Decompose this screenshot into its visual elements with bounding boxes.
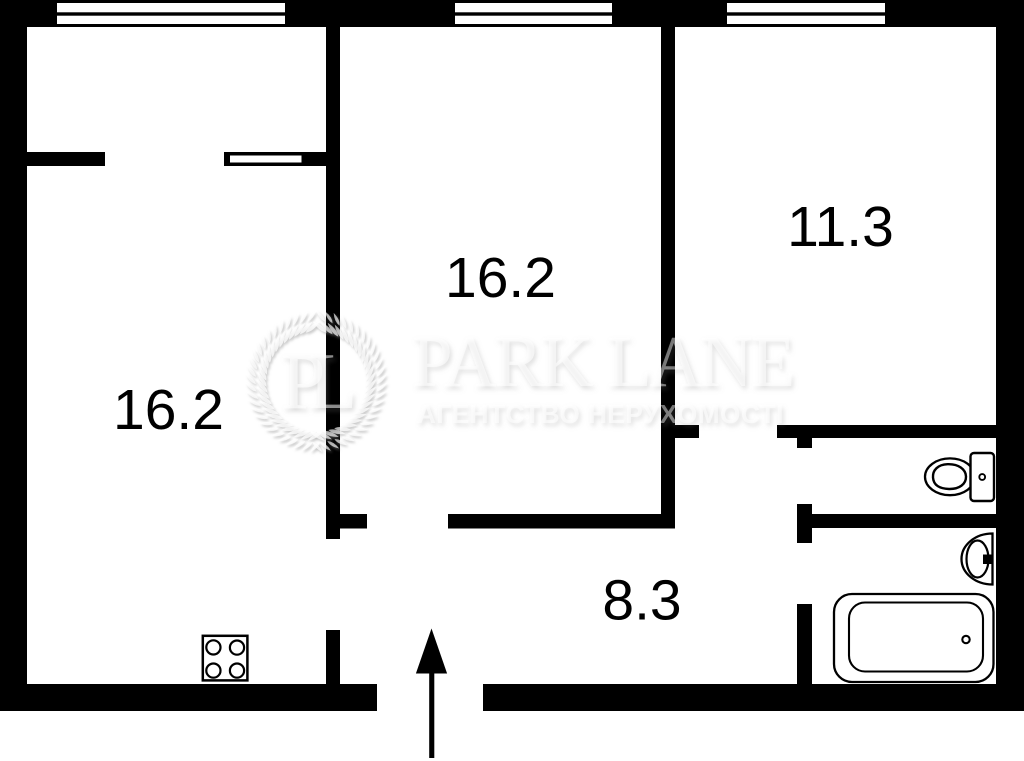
svg-text:АГЕНТСТВО НЕРУХОМОСТІ: АГЕНТСТВО НЕРУХОМОСТІ	[417, 399, 784, 429]
svg-text:16.2: 16.2	[113, 378, 224, 442]
svg-text:8.3: 8.3	[602, 569, 681, 633]
svg-text:16.2: 16.2	[445, 246, 556, 310]
svg-text:11.3: 11.3	[787, 195, 894, 259]
svg-text:PARK LANE: PARK LANE	[412, 321, 793, 402]
